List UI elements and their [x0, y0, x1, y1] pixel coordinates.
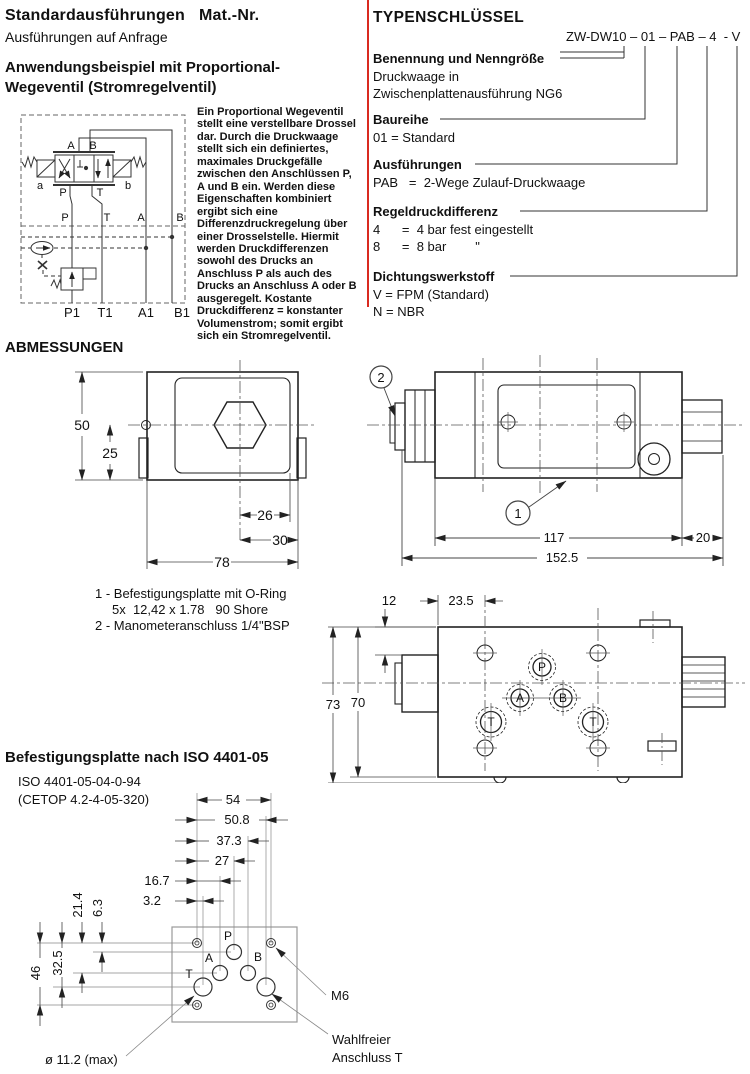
- dim-37-3-label: 37.3: [216, 833, 241, 848]
- topview-port-t1: T: [487, 715, 495, 729]
- plate-port-t: T: [185, 967, 193, 981]
- bottom-port-p1: P1: [64, 305, 80, 320]
- note-line-1: 1 - Befestigungsplatte mit O-Ring: [95, 586, 286, 601]
- bottom-port-b1: B1: [174, 305, 190, 320]
- mid-port-p: P: [61, 212, 68, 224]
- topview-port-p: P: [538, 660, 546, 674]
- plate-port-b: B: [254, 950, 262, 964]
- tk-dichtung-line2: N = NBR: [373, 303, 425, 320]
- mounting-plate-drawing: 54 50.8 37.3 27 16.7 3.2 21.4 6.3 32.5 4…: [25, 780, 500, 1074]
- mounting-plate-heading: Befestigungsplatte nach ISO 4401-05: [5, 748, 268, 768]
- dim-23-5-label: 23.5: [448, 593, 473, 608]
- mid-port-t: T: [104, 212, 111, 224]
- plate-port-a: A: [205, 951, 213, 965]
- valve-port-a-label: A: [67, 140, 75, 152]
- m6-label: M6: [331, 988, 349, 1003]
- tk-label-dichtung: Dichtungswerkstoff: [373, 269, 494, 284]
- page-title: Standardausführungen: [5, 7, 185, 25]
- diameter-label: ø 11.2 (max): [45, 1052, 118, 1067]
- datasheet-page: Standardausführungen Mat.-Nr. Ausführung…: [0, 0, 750, 1074]
- dim-73-label: 73: [326, 697, 340, 712]
- balloon-1-label: 1: [514, 506, 521, 521]
- topview-port-a: A: [516, 691, 524, 705]
- dim-26-label: 26: [257, 507, 273, 523]
- tk-benennung-line2: Zwischenplattenausführung NG6: [373, 85, 562, 102]
- topview-port-t2: T: [589, 715, 597, 729]
- example-heading: Anwendungsbeispiel mit Proportional- Weg…: [5, 58, 365, 98]
- dim-50-label: 50: [74, 417, 90, 433]
- solenoid-a-label: a: [37, 180, 44, 192]
- dim-27-label: 27: [215, 853, 229, 868]
- tk-label-baureihe: Baureihe: [373, 112, 429, 127]
- tk-dichtung-line1: V = FPM (Standard): [373, 286, 489, 303]
- balloon-2-label: 2: [377, 370, 384, 385]
- optional-t-label-line1: Wahlfreier: [332, 1032, 391, 1047]
- dim-12-label: 12: [382, 593, 396, 608]
- side-view-drawing: 2 1 117 20 152.5: [365, 350, 750, 580]
- topview-port-b: B: [559, 691, 567, 705]
- plate-port-p: P: [224, 929, 232, 943]
- bottom-port-a1: A1: [138, 305, 154, 320]
- dim-30-label: 30: [272, 532, 288, 548]
- tk-benennung-line1: Druckwaage in: [373, 68, 459, 85]
- tk-label-regeldruck: Regeldruckdifferenz: [373, 204, 498, 219]
- dim-25-label: 25: [102, 445, 118, 461]
- dim-16-7-label: 16.7: [144, 873, 169, 888]
- dim-54-label: 54: [226, 792, 240, 807]
- dim-78-label: 78: [214, 554, 230, 570]
- bottom-port-t1: T1: [97, 305, 112, 320]
- tk-regeldruck-line2: 8 = 8 bar ": [373, 238, 480, 255]
- dim-117-label: 117: [544, 530, 565, 545]
- note-line-2: 5x 12,42 x 1.78 90 Shore: [112, 602, 268, 617]
- dim-32-5-label: 32.5: [50, 950, 65, 975]
- dim-20-label: 20: [696, 530, 710, 545]
- dim-21-4-label: 21.4: [70, 892, 85, 917]
- dim-50-8-label: 50.8: [224, 812, 249, 827]
- solenoid-b-label: b: [125, 180, 131, 192]
- tk-label-benennung: Benennung und Nenngröße: [373, 51, 544, 66]
- tk-baureihe-line1: 01 = Standard: [373, 129, 455, 146]
- mid-port-a: A: [137, 212, 145, 224]
- subheading: Ausführungen auf Anfrage: [5, 29, 168, 45]
- optional-t-label-line2: Anschluss T: [332, 1050, 403, 1065]
- valve-port-p-label: P: [59, 187, 66, 199]
- mid-port-b: B: [176, 212, 183, 224]
- dim-70-label: 70: [351, 695, 365, 710]
- matnr-heading: Mat.-Nr.: [199, 7, 259, 25]
- hydraulic-circuit-diagram: A B P T a b P T A B P1 T1 A1 B1: [10, 108, 195, 333]
- front-view-drawing: 50 25 26 30 78: [55, 352, 345, 582]
- tk-regeldruck-line1: 4 = 4 bar fest eingestellt: [373, 221, 533, 238]
- valve-port-b-label: B: [89, 140, 96, 152]
- top-view-drawing: 12 23.5 73 70 P A B T T: [320, 583, 750, 783]
- dim-3-2-label: 3.2: [143, 893, 161, 908]
- tk-ausfuehrungen-line1: PAB = 2-Wege Zulauf-Druckwaage: [373, 174, 585, 191]
- tk-label-ausfuehrungen: Ausführungen: [373, 157, 462, 172]
- note-line-3: 2 - Manometeranschluss 1/4"BSP: [95, 618, 290, 633]
- valve-port-t-label: T: [97, 187, 104, 199]
- typecode-connector-lines: [365, 0, 750, 310]
- dim-46-label: 46: [28, 966, 43, 980]
- dim-152-label: 152.5: [546, 550, 579, 565]
- dim-6-3-label: 6.3: [90, 899, 105, 917]
- description-text: Ein Proportional Wegeventil stellt eine …: [197, 106, 369, 343]
